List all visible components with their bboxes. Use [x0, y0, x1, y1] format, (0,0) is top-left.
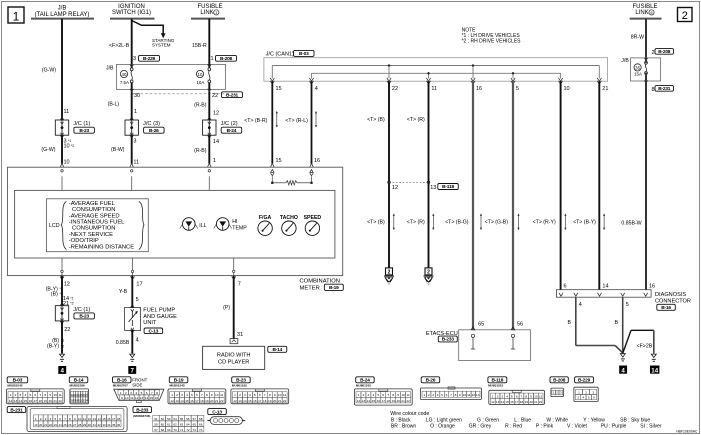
svg-text:10: 10: [401, 393, 405, 397]
svg-text:21: 21: [602, 86, 608, 92]
svg-text:5: 5: [136, 297, 139, 303]
svg-text:67: 67: [154, 428, 158, 432]
svg-text:8: 8: [44, 393, 46, 397]
svg-text:J/B: J/B: [621, 58, 629, 64]
svg-text:69: 69: [167, 428, 171, 432]
svg-text:(G-W): (G-W): [41, 147, 55, 153]
svg-text:27: 27: [73, 423, 77, 427]
svg-text:CD PLAYER: CD PLAYER: [218, 360, 249, 366]
svg-text:2: 2: [428, 393, 430, 397]
svg-text:2: 2: [682, 10, 688, 22]
svg-text:1: 1: [423, 393, 425, 397]
svg-text:FUEL PUMP: FUEL PUMP: [143, 308, 175, 314]
svg-text:18: 18: [520, 400, 524, 404]
svg-text:7: 7: [450, 393, 452, 397]
svg-text:B-208: B-208: [553, 378, 566, 384]
svg-text:16: 16: [29, 399, 33, 403]
svg-text:11: 11: [83, 417, 86, 421]
svg-text:*2 : RH DRIVE VEHICLES: *2 : RH DRIVE VEHICLES: [462, 38, 522, 44]
svg-text:(B): (B): [51, 291, 58, 297]
svg-text:FUSIBLE: FUSIBLE: [197, 4, 222, 10]
svg-text:10: 10: [198, 72, 203, 77]
svg-text:3: 3: [368, 393, 370, 397]
svg-text:DIAGNOSIS: DIAGNOSIS: [655, 292, 686, 298]
svg-text:8: 8: [455, 393, 457, 397]
svg-text:B-23: B-23: [79, 128, 89, 134]
svg-text:6: 6: [516, 395, 518, 399]
svg-text:-ODO/TRIP: -ODO/TRIP: [69, 238, 99, 244]
svg-text:RADIO WITH: RADIO WITH: [217, 353, 251, 359]
svg-text:13: 13: [430, 185, 436, 191]
svg-text:B-14: B-14: [272, 347, 282, 353]
svg-text:56: 56: [186, 417, 190, 421]
svg-text:BR : Brown O : Orange: BR : Brown O : Orange GR : Grey R : Red …: [391, 424, 662, 430]
svg-text:15: 15: [505, 400, 509, 404]
svg-text:FUSIBLE: FUSIBLE: [632, 4, 657, 10]
svg-text:*2: *2: [70, 302, 73, 306]
svg-text:31: 31: [237, 332, 243, 338]
svg-text:F/GA: F/GA: [259, 215, 272, 221]
svg-text:11: 11: [59, 393, 62, 397]
svg-text:4: 4: [136, 338, 139, 344]
svg-text:2: 2: [125, 391, 127, 395]
svg-text:25: 25: [63, 423, 67, 427]
svg-text:<T> (B-Y): <T> (B-Y): [573, 220, 596, 226]
svg-text:10A: 10A: [196, 80, 204, 85]
svg-text:16: 16: [510, 400, 514, 404]
svg-text:17: 17: [258, 399, 262, 403]
svg-text:-REMAINING DISTANCE: -REMAINING DISTANCE: [69, 244, 134, 250]
svg-text:1: 1: [171, 393, 173, 397]
svg-text:35: 35: [112, 423, 116, 427]
svg-text:4: 4: [315, 86, 318, 92]
svg-text:53: 53: [167, 417, 171, 421]
svg-text:11: 11: [283, 393, 286, 397]
svg-text:51: 51: [154, 417, 158, 421]
svg-text:32: 32: [97, 423, 101, 427]
svg-text:40: 40: [122, 72, 127, 77]
svg-text:9: 9: [211, 393, 213, 397]
svg-text:B-229: B-229: [578, 378, 591, 384]
svg-text:21: 21: [53, 399, 57, 403]
svg-text:AND GAUGE: AND GAUGE: [143, 314, 177, 320]
svg-text:B: B: [568, 320, 572, 326]
svg-text:5: 5: [511, 395, 513, 399]
svg-text:58: 58: [199, 417, 203, 421]
svg-text:CONSUMPTION: CONSUMPTION: [69, 207, 116, 213]
svg-text:J/C (2): J/C (2): [221, 121, 238, 127]
svg-text:6: 6: [446, 393, 448, 397]
svg-text:17: 17: [112, 417, 116, 421]
svg-text:13: 13: [14, 399, 18, 403]
svg-text:19: 19: [525, 400, 529, 404]
svg-text:J/C (1): J/C (1): [73, 307, 90, 313]
svg-text:10: 10: [64, 159, 70, 165]
svg-text:22: 22: [64, 327, 70, 333]
svg-text:5: 5: [516, 86, 519, 92]
svg-text:34: 34: [107, 423, 111, 427]
svg-text:*2: *2: [61, 344, 64, 348]
svg-text:MU801545: MU801545: [7, 383, 22, 387]
svg-text:14: 14: [602, 283, 608, 289]
svg-text:15B-R: 15B-R: [192, 43, 207, 49]
svg-text:MU801586: MU801586: [70, 383, 85, 387]
svg-text:CONNECTOR: CONNECTOR: [655, 299, 691, 305]
svg-text:17: 17: [382, 399, 386, 403]
svg-text:2: 2: [427, 270, 430, 276]
svg-text:68: 68: [161, 428, 165, 432]
svg-text:73: 73: [193, 428, 197, 432]
svg-text:3: 3: [20, 393, 22, 397]
svg-text:8: 8: [525, 395, 527, 399]
svg-text:11: 11: [130, 396, 133, 400]
svg-text:HBF10E00AC: HBF10E00AC: [676, 430, 698, 434]
svg-text:13: 13: [93, 417, 97, 421]
svg-text:2: 2: [363, 393, 365, 397]
svg-text:-NEXT SERVICE: -NEXT SERVICE: [69, 232, 113, 238]
svg-text:13: 13: [238, 399, 242, 403]
svg-text:B-231: B-231: [10, 407, 23, 413]
svg-text:6: 6: [259, 393, 261, 397]
svg-text:(R-B): (R-B): [194, 102, 207, 108]
svg-text:3: 3: [133, 139, 136, 145]
svg-text:6: 6: [34, 393, 36, 397]
svg-text:<T> (B): <T> (B): [367, 117, 385, 123]
svg-text:11: 11: [64, 109, 70, 115]
svg-text:*2: *2: [71, 144, 74, 148]
svg-text:CONSUMPTION: CONSUMPTION: [69, 226, 116, 232]
svg-text:9: 9: [121, 396, 123, 400]
svg-text:10: 10: [125, 396, 129, 400]
svg-text:36: 36: [117, 423, 121, 427]
svg-text:<T> (B-R): <T> (B-R): [244, 118, 267, 124]
svg-text:LCD: LCD: [49, 223, 60, 229]
svg-text:-AVERAGE FUEL: -AVERAGE FUEL: [69, 201, 116, 207]
svg-text:9: 9: [397, 393, 399, 397]
svg-text:B-24: B-24: [227, 128, 237, 134]
svg-text:70: 70: [173, 428, 177, 432]
svg-text:<T> (B-G): <T> (B-G): [445, 220, 469, 226]
svg-text:7.5A: 7.5A: [120, 80, 129, 85]
svg-text:20: 20: [48, 399, 52, 403]
svg-text:12: 12: [472, 393, 476, 397]
svg-text:<F>2B: <F>2B: [637, 344, 653, 350]
svg-text:<T> (G-B): <T> (G-B): [485, 220, 509, 226]
svg-text:1: 1: [210, 56, 213, 62]
svg-text:8: 8: [206, 393, 208, 397]
svg-text:MU801515: MU801515: [356, 383, 371, 387]
svg-text:21: 21: [534, 400, 538, 404]
svg-text:B-23: B-23: [79, 314, 89, 320]
svg-text:1: 1: [213, 158, 216, 164]
svg-text:6: 6: [650, 11, 652, 15]
svg-text:11: 11: [220, 393, 223, 397]
svg-text:6: 6: [564, 283, 567, 289]
svg-text:*1: *1: [61, 339, 64, 343]
svg-text:B-03: B-03: [299, 51, 309, 57]
svg-text:7: 7: [238, 282, 241, 288]
svg-text:-INSTANEOUS FUEL: -INSTANEOUS FUEL: [69, 220, 125, 226]
svg-text:(G-W): (G-W): [42, 68, 56, 74]
svg-text:22: 22: [49, 423, 53, 427]
svg-text:4: 4: [135, 391, 137, 395]
svg-text:18: 18: [200, 399, 204, 403]
svg-text:<T> (R): <T> (R): [407, 220, 425, 226]
svg-text:22: 22: [220, 399, 224, 403]
svg-text:65: 65: [193, 422, 197, 426]
svg-text:17: 17: [515, 400, 519, 404]
svg-text:19: 19: [44, 399, 48, 403]
svg-text:28: 28: [78, 423, 82, 427]
svg-text:4: 4: [186, 393, 188, 397]
svg-text:10: 10: [534, 395, 538, 399]
svg-text:16: 16: [476, 86, 482, 92]
svg-text:15: 15: [24, 399, 28, 403]
svg-text:20: 20: [210, 399, 214, 403]
svg-text:16: 16: [155, 396, 159, 400]
svg-text:16: 16: [107, 417, 111, 421]
svg-text:64: 64: [186, 422, 190, 426]
svg-text:5: 5: [254, 393, 256, 397]
svg-text:B-233: B-233: [442, 337, 455, 343]
svg-text:16: 16: [649, 283, 655, 289]
svg-text:1: 1: [10, 393, 12, 397]
svg-text:18: 18: [39, 399, 43, 403]
svg-text:8: 8: [156, 391, 158, 395]
svg-text:14: 14: [213, 139, 219, 145]
svg-text:7: 7: [264, 393, 266, 397]
svg-text:8: 8: [652, 87, 655, 93]
svg-text:IGNITION: IGNITION: [118, 4, 145, 10]
svg-text:4: 4: [373, 393, 375, 397]
svg-text:23: 23: [54, 423, 58, 427]
svg-text:<T> (B): <T> (B): [367, 220, 385, 226]
svg-text:61: 61: [167, 422, 171, 426]
svg-text:10: 10: [564, 86, 570, 92]
svg-text:18: 18: [117, 417, 121, 421]
svg-text:20: 20: [39, 423, 43, 427]
svg-text:B-208: B-208: [220, 56, 233, 62]
svg-text:5: 5: [141, 391, 143, 395]
svg-text:6: 6: [382, 393, 384, 397]
svg-text:(MU803746): (MU803746): [133, 414, 150, 418]
svg-text:9: 9: [530, 395, 532, 399]
svg-text:7: 7: [201, 393, 203, 397]
svg-text:<T> (R-L): <T> (R-L): [285, 118, 308, 124]
svg-text:16: 16: [377, 399, 381, 403]
svg-text:13: 13: [476, 393, 480, 397]
svg-text:15: 15: [276, 158, 282, 164]
svg-text:24: 24: [59, 423, 63, 427]
svg-text:SPEED: SPEED: [304, 215, 322, 221]
svg-text:MU801545: MU801545: [170, 383, 185, 387]
svg-text:2: 2: [239, 393, 241, 397]
svg-text:14: 14: [501, 400, 505, 404]
svg-text:13: 13: [496, 400, 500, 404]
svg-text:12: 12: [491, 400, 495, 404]
svg-text:7: 7: [39, 393, 41, 397]
svg-text:<T> (R-Y): <T> (R-Y): [533, 220, 556, 226]
svg-text:11: 11: [431, 86, 437, 92]
svg-text:20: 20: [529, 400, 533, 404]
svg-text:21: 21: [401, 399, 405, 403]
svg-text:(B-Y): (B-Y): [47, 344, 59, 350]
svg-text:14: 14: [97, 417, 101, 421]
svg-text:59: 59: [154, 422, 158, 426]
svg-text:(R-B): (R-B): [194, 148, 207, 154]
svg-text:17: 17: [195, 399, 199, 403]
svg-text:52: 52: [161, 417, 165, 421]
svg-text:30: 30: [134, 93, 140, 99]
svg-text:19: 19: [205, 399, 209, 403]
svg-text:J/C (1): J/C (1): [73, 121, 90, 127]
svg-text:7: 7: [131, 368, 135, 375]
svg-text:63: 63: [180, 422, 184, 426]
svg-text:B-19: B-19: [329, 285, 339, 291]
svg-text:12: 12: [213, 111, 219, 117]
svg-text:5: 5: [377, 393, 379, 397]
svg-text:1: 1: [215, 11, 217, 15]
svg-text:12: 12: [357, 399, 361, 403]
svg-text:21: 21: [44, 423, 48, 427]
svg-text:B-231: B-231: [658, 86, 671, 92]
svg-text:19: 19: [268, 399, 272, 403]
svg-text:3: 3: [181, 393, 183, 397]
svg-text:12: 12: [170, 399, 174, 403]
svg-text:15: 15: [185, 399, 189, 403]
svg-text:10: 10: [53, 393, 57, 397]
svg-text:B-208: B-208: [658, 49, 671, 55]
svg-text:*1: *1: [60, 287, 63, 291]
svg-text:22: 22: [392, 86, 398, 92]
svg-text:22: 22: [406, 399, 410, 403]
svg-text:B-16: B-16: [661, 305, 671, 311]
svg-text:11: 11: [539, 395, 542, 399]
svg-text:J/C (CAN1): J/C (CAN1): [266, 52, 294, 58]
svg-text:12: 12: [233, 399, 237, 403]
svg-text:6: 6: [196, 393, 198, 397]
svg-text:3: 3: [244, 393, 246, 397]
svg-text:HI: HI: [232, 219, 237, 225]
svg-text:7: 7: [521, 395, 523, 399]
svg-text:10: 10: [278, 393, 282, 397]
svg-text:4: 4: [621, 367, 625, 374]
svg-text:(B-W): (B-W): [111, 147, 125, 153]
svg-text:71: 71: [180, 428, 184, 432]
svg-text:15: 15: [276, 86, 282, 92]
svg-text:1: 1: [13, 9, 20, 23]
svg-text:20: 20: [273, 399, 277, 403]
svg-text:33: 33: [102, 423, 106, 427]
svg-text:21: 21: [278, 399, 282, 403]
svg-text:62: 62: [173, 422, 177, 426]
svg-text:22: 22: [539, 400, 543, 404]
svg-text:2: 2: [15, 393, 17, 397]
svg-text:2: 2: [388, 270, 391, 276]
svg-text:LINK: LINK: [635, 10, 648, 16]
svg-text:UNIT: UNIT: [143, 320, 157, 326]
svg-text:12: 12: [9, 399, 13, 403]
svg-text:12: 12: [64, 282, 70, 288]
svg-text:12: 12: [392, 185, 398, 191]
svg-text:60: 60: [161, 422, 165, 426]
svg-text:Y-B: Y-B: [119, 289, 128, 295]
svg-text:4: 4: [249, 393, 251, 397]
svg-text:17: 17: [34, 399, 38, 403]
svg-text:18: 18: [387, 399, 391, 403]
svg-text:7: 7: [387, 393, 389, 397]
svg-text:0.85B: 0.85B: [116, 340, 130, 346]
svg-text:65: 65: [478, 321, 484, 327]
svg-text:MU802707: MU802707: [113, 383, 128, 387]
svg-text:12: 12: [135, 396, 139, 400]
svg-text:12: 12: [88, 417, 92, 421]
svg-text:C-13: C-13: [212, 409, 222, 415]
svg-text:22: 22: [212, 93, 218, 99]
svg-text:21: 21: [215, 399, 219, 403]
svg-text:13: 13: [362, 399, 366, 403]
svg-text:8: 8: [392, 393, 394, 397]
svg-text:COMBINATION: COMBINATION: [300, 279, 340, 285]
svg-text:57: 57: [193, 417, 197, 421]
svg-text:7: 7: [151, 391, 153, 395]
svg-text:15: 15: [150, 396, 154, 400]
svg-text:2: 2: [652, 50, 655, 56]
svg-text:29: 29: [83, 423, 87, 427]
svg-text:B-118: B-118: [442, 184, 454, 190]
svg-text:74: 74: [199, 428, 203, 432]
svg-text:J/B: J/B: [106, 66, 114, 72]
svg-text:15: 15: [372, 399, 376, 403]
svg-text:METER: METER: [300, 286, 320, 292]
svg-text:3: 3: [130, 391, 132, 395]
svg-text:11: 11: [407, 393, 410, 397]
svg-text:18: 18: [263, 399, 267, 403]
svg-text:J/C (3): J/C (3): [143, 121, 160, 127]
svg-text:3: 3: [432, 393, 434, 397]
svg-text:35: 35: [635, 65, 640, 70]
svg-text:(B-L): (B-L): [108, 102, 120, 108]
svg-text:15: 15: [248, 399, 252, 403]
svg-text:14: 14: [180, 399, 184, 403]
svg-text:8R-W: 8R-W: [631, 34, 644, 40]
svg-text:56: 56: [517, 321, 523, 327]
svg-text:(P): (P): [223, 305, 230, 311]
svg-text:B : Black LG : Light: B : Black LG : Light green G : Green L :…: [391, 418, 650, 424]
svg-text:30: 30: [88, 423, 92, 427]
svg-text:16: 16: [190, 399, 194, 403]
svg-text:B-231: B-231: [226, 92, 239, 98]
svg-text:1: 1: [492, 395, 494, 399]
svg-text:6: 6: [146, 391, 148, 395]
svg-text:13: 13: [175, 399, 179, 403]
svg-text:9: 9: [274, 393, 276, 397]
svg-text:<T> (R): <T> (R): [407, 117, 425, 123]
svg-text:<F>2L-B: <F>2L-B: [109, 43, 130, 49]
svg-text:*1: *1: [70, 297, 73, 301]
svg-text:3: 3: [501, 395, 503, 399]
svg-text:11: 11: [133, 159, 139, 165]
svg-text:72: 72: [186, 428, 190, 432]
svg-text:5: 5: [441, 393, 443, 397]
svg-text:B-26: B-26: [149, 128, 159, 134]
svg-text:10: 10: [215, 393, 219, 397]
svg-text:SWITCH (IG1): SWITCH (IG1): [112, 10, 151, 16]
svg-text:1: 1: [358, 393, 360, 397]
svg-text:4: 4: [506, 395, 508, 399]
svg-text:54: 54: [173, 417, 177, 421]
svg-text:1: 1: [134, 109, 137, 115]
